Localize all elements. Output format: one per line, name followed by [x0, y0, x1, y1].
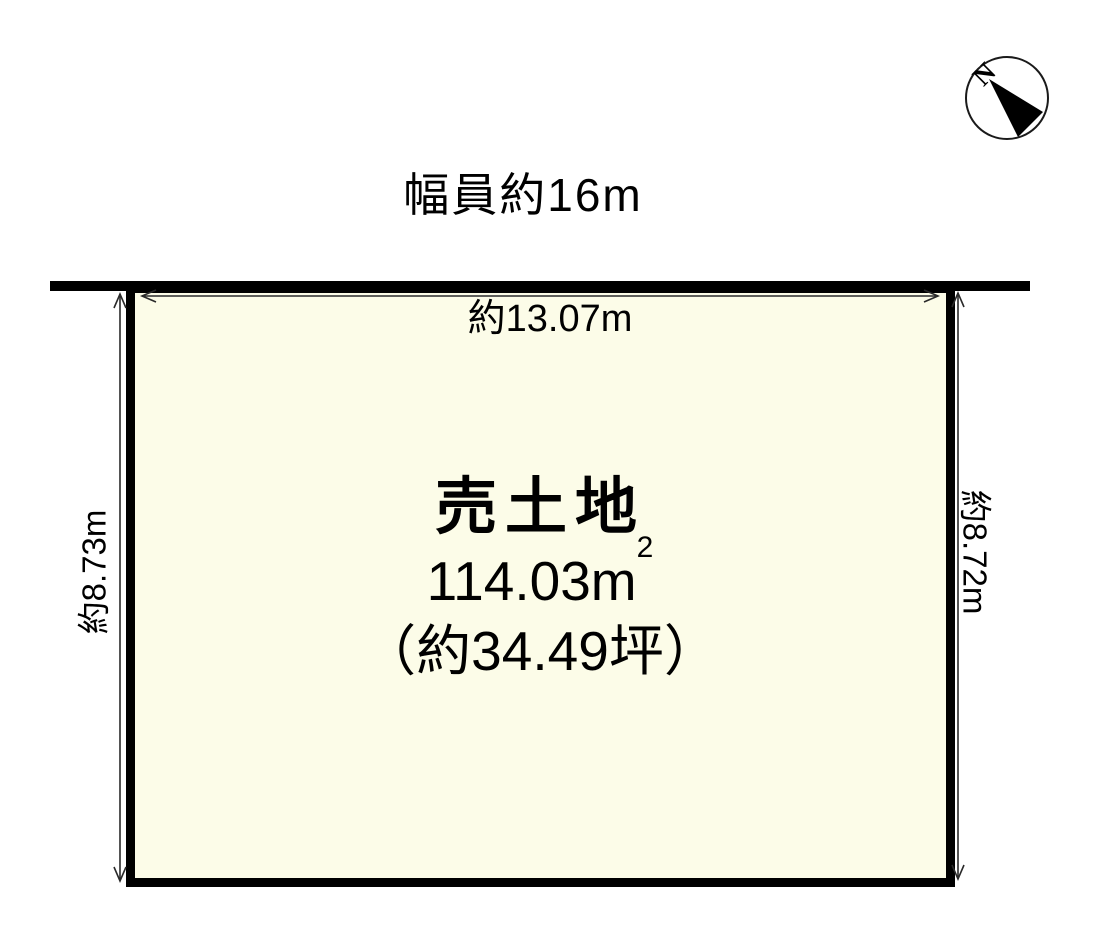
diagram-graphics: N: [0, 0, 1115, 925]
parcel-area-sqm-value: 114.03m: [427, 550, 637, 612]
parcel-area-sqm: 114.03m2: [361, 546, 719, 616]
north-compass-icon: N: [966, 56, 1048, 139]
road-width-label: 幅員約16m: [403, 172, 642, 218]
parcel-area-sqm-superscript: 2: [637, 531, 654, 564]
right-dimension-label: 約8.72m: [959, 490, 992, 615]
parcel-info: 売土地 114.03m2 （約34.49坪）: [361, 470, 719, 686]
parcel-area-tsubo: （約34.49坪）: [361, 616, 719, 686]
parcel-title: 売土地: [361, 470, 719, 546]
left-dimension-label: 約8.73m: [78, 510, 111, 635]
left-dimension-arrow: [114, 294, 126, 881]
top-dimension-label: 約13.07m: [468, 300, 633, 338]
land-plot-diagram: N 幅員約16m 約13.07m 約8.73m 約8.72m 売土地 114.0…: [0, 0, 1115, 925]
